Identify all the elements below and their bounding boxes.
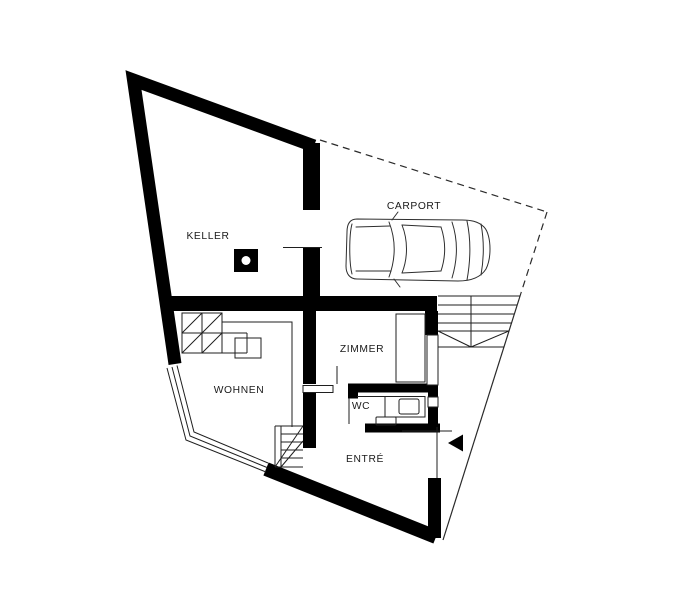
column-core xyxy=(242,256,251,265)
wall-wc-top-left-block xyxy=(348,384,358,399)
floor-plan-drawing: KELLER CARPORT ZIMMER WOHNEN WC ENTRÉ xyxy=(0,0,700,616)
window-wc-east xyxy=(428,397,438,407)
column-icon xyxy=(234,249,258,272)
room-label-carport: CARPORT xyxy=(387,201,441,212)
zimmer-door-leaf xyxy=(303,386,333,393)
room-label-zimmer: ZIMMER xyxy=(340,344,384,355)
wall-right-segment xyxy=(428,384,438,397)
window-zimmer-east xyxy=(427,335,438,385)
room-label-wc: WC xyxy=(352,401,370,412)
floor-plan-page: KELLER CARPORT ZIMMER WOHNEN WC ENTRÉ xyxy=(0,0,700,616)
room-label-wohnen: WOHNEN xyxy=(214,385,265,396)
room-label-keller: KELLER xyxy=(186,231,229,242)
room-label-entre: ENTRÉ xyxy=(346,452,384,465)
